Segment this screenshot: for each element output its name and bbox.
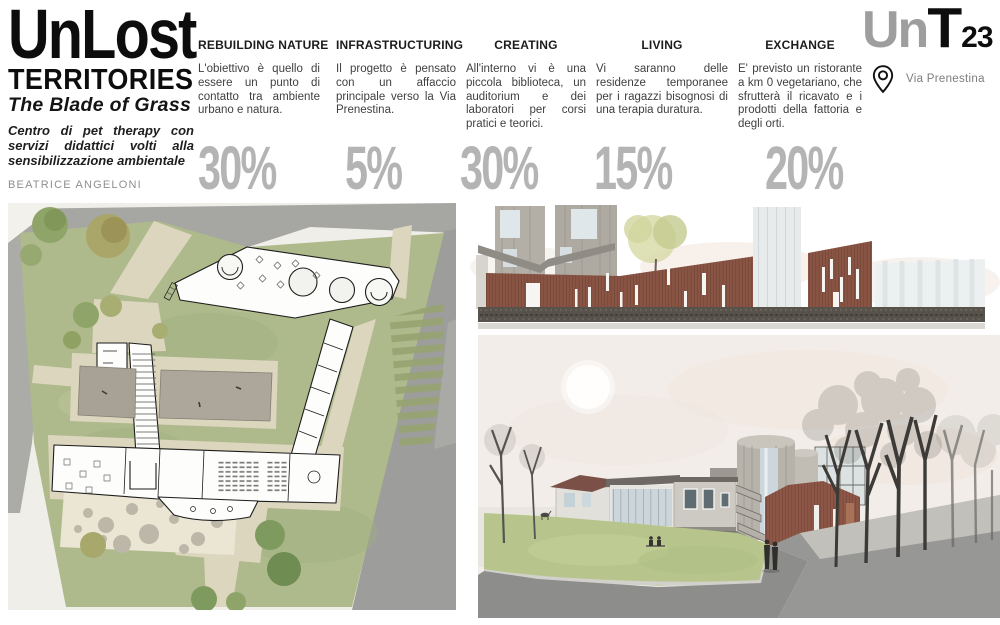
perspective-render-image	[478, 335, 1000, 618]
street-elevation-image	[470, 197, 1000, 340]
column-body: Il progetto è pensato con un affaccio pr…	[336, 63, 456, 118]
concept-column-creating: CREATING All'interno vi è una piccola bi…	[466, 38, 586, 52]
column-heading: REBUILDING NATURE	[198, 38, 320, 52]
logo-unt23: UnT23	[862, 0, 993, 57]
column-heading: LIVING	[596, 38, 728, 52]
glass-facade-right	[875, 259, 985, 307]
column-heading: EXCHANGE	[738, 38, 862, 52]
column-body: All'interno vi è una piccola biblioteca,…	[466, 63, 586, 132]
bridge	[710, 468, 740, 478]
poster-board: UnLost TERRITORIES The Blade of Grass Ce…	[0, 0, 1000, 625]
site-plan-panel	[8, 203, 456, 610]
concept-column-infrastructuring: INFRASTRUCTURING Il progetto è pensato c…	[336, 38, 456, 52]
percent-value: 30%	[198, 137, 276, 198]
percent-value: 5%	[345, 137, 401, 198]
logo-letter: T	[927, 0, 961, 60]
perspective-panel	[478, 335, 1000, 618]
ground-strip	[478, 307, 985, 329]
elevation-panel	[470, 197, 1000, 340]
corten-facade-right	[808, 241, 872, 310]
logo-prefix: Un	[862, 1, 927, 59]
site-plan-image	[8, 203, 456, 610]
location-pin-icon	[872, 64, 894, 94]
page-title: UnLost	[8, 4, 196, 66]
glass-tower	[753, 207, 801, 310]
column-body: Vi saranno delle residenze temporanee pe…	[596, 63, 728, 118]
concept-column-rebuilding-nature: REBUILDING NATURE L'obiettivo è quello d…	[198, 38, 320, 52]
logo-number: 23	[961, 21, 992, 54]
column-heading: CREATING	[466, 38, 586, 52]
percent-value: 20%	[765, 137, 843, 198]
column-body: L'obiettivo è quello di essere un punto …	[198, 63, 320, 118]
column-body: E' previsto un ristorante a km 0 vegetar…	[738, 63, 862, 132]
author-name: BEATRICE ANGELONI	[8, 179, 142, 191]
percent-value: 15%	[594, 137, 672, 198]
glass-corridor	[606, 475, 680, 527]
page-title-sub: TERRITORIES	[8, 66, 193, 94]
concept-column-exchange: EXCHANGE E' previsto un ristorante a km …	[738, 38, 862, 52]
sun	[561, 360, 615, 414]
concept-column-living: LIVING Vi saranno delle residenze tempor…	[596, 38, 728, 52]
column-heading: INFRASTRUCTURING	[336, 38, 456, 52]
percent-value: 30%	[460, 137, 538, 198]
project-description: Centro di pet therapy con servizi didatt…	[8, 124, 194, 168]
project-tagline: The Blade of Grass	[8, 94, 191, 117]
center-block	[672, 477, 738, 531]
logo-address: Via Prenestina	[906, 73, 985, 85]
